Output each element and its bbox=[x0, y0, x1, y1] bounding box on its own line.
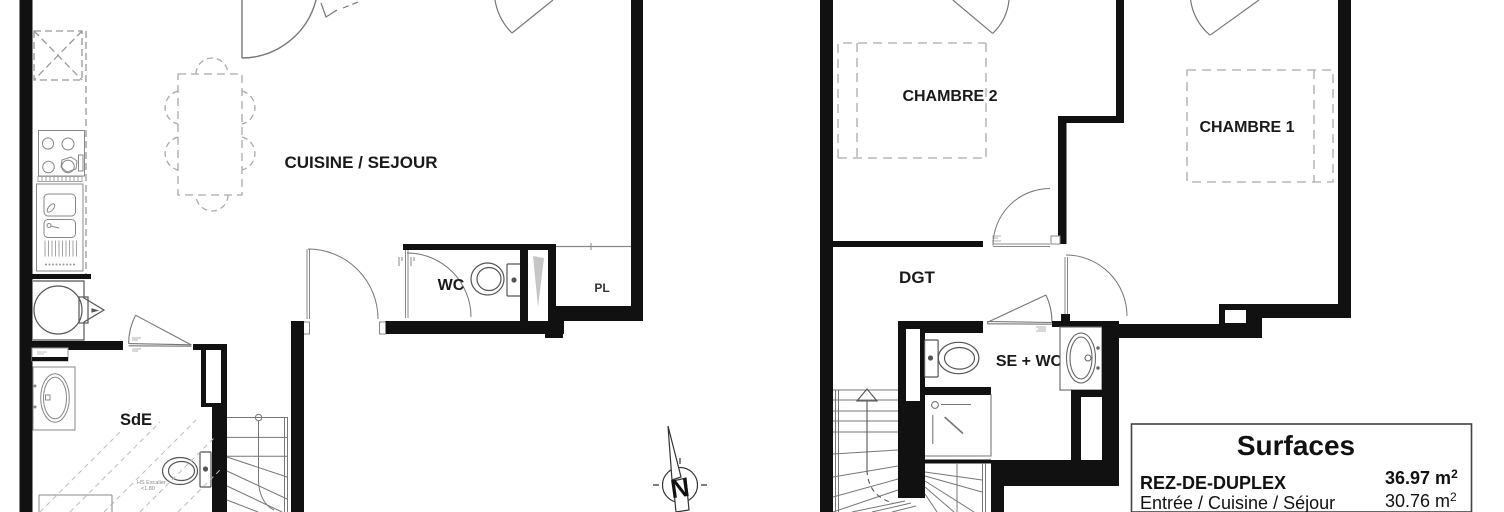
svg-text:CUISINE / SEJOUR: CUISINE / SEJOUR bbox=[284, 153, 437, 172]
svg-text:SdE: SdE bbox=[120, 411, 152, 429]
svg-text:Entrée / Cuisine / Séjour: Entrée / Cuisine / Séjour bbox=[1140, 493, 1335, 512]
svg-text:36.97 m2: 36.97 m2 bbox=[1385, 467, 1458, 488]
svg-text:DGT: DGT bbox=[899, 268, 936, 287]
svg-text:30.76 m2: 30.76 m2 bbox=[1385, 490, 1457, 511]
svg-text:<1.80: <1.80 bbox=[141, 486, 155, 492]
svg-text:CHAMBRE 2: CHAMBRE 2 bbox=[902, 88, 997, 105]
svg-text:Surfaces: Surfaces bbox=[1237, 430, 1355, 461]
svg-text:REZ-DE-DUPLEX: REZ-DE-DUPLEX bbox=[1140, 473, 1286, 493]
svg-text:PL: PL bbox=[594, 281, 609, 295]
svg-text:WC: WC bbox=[438, 277, 465, 294]
svg-text:CHAMBRE 1: CHAMBRE 1 bbox=[1199, 119, 1294, 136]
svg-text:SE + WC: SE + WC bbox=[996, 353, 1063, 370]
